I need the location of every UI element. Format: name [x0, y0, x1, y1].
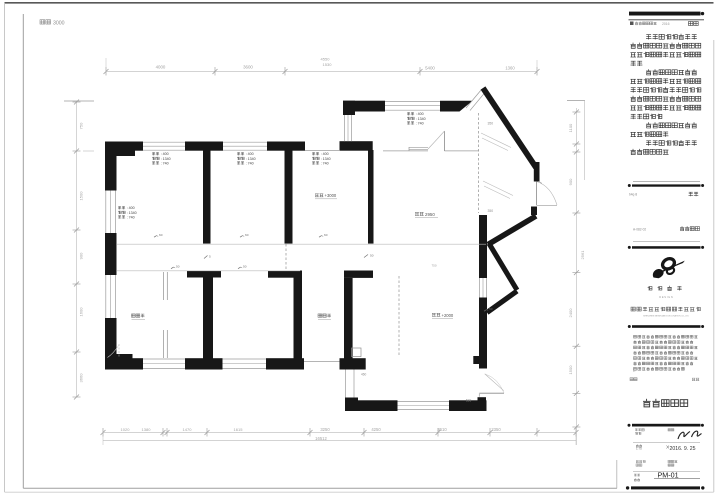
svg-text:900: 900 [568, 178, 573, 185]
svg-text:4250: 4250 [371, 427, 381, 432]
svg-text:3600: 3600 [243, 65, 253, 70]
svg-text:1500: 1500 [568, 365, 573, 375]
svg-text:750: 750 [431, 264, 436, 268]
svg-text:: 1340: : 1340 [161, 157, 171, 161]
svg-text:60: 60 [245, 233, 249, 237]
svg-text:1530: 1530 [323, 62, 333, 67]
svg-text:1100: 1100 [568, 123, 573, 132]
svg-text:1470: 1470 [183, 427, 193, 432]
svg-text:1600: 1600 [79, 307, 84, 317]
svg-text:2016. 9. 25: 2016. 9. 25 [670, 446, 696, 452]
svg-text:: 740: : 740 [127, 215, 135, 219]
svg-text:3000: 3000 [53, 21, 65, 27]
svg-text:: 740: : 740 [161, 161, 169, 165]
svg-text:50: 50 [176, 265, 180, 269]
svg-text:750: 750 [79, 122, 84, 129]
svg-text:350: 350 [488, 209, 494, 213]
svg-text:: 400: : 400 [246, 152, 254, 156]
svg-text:: 1340: : 1340 [246, 157, 256, 161]
svg-text:: 400: : 400 [416, 112, 424, 116]
svg-text:5400: 5400 [425, 65, 435, 70]
svg-text:A-082-02: A-082-02 [633, 228, 646, 232]
svg-text:: 740: : 740 [246, 161, 254, 165]
svg-text:900: 900 [79, 252, 84, 259]
svg-text:D E S I G N: D E S I G N [659, 295, 673, 299]
svg-text:: 400: : 400 [127, 206, 135, 210]
svg-text:: 1340: : 1340 [127, 211, 137, 215]
svg-text:: 740: : 740 [416, 121, 424, 125]
svg-text:1:75: 1:75 [636, 447, 642, 451]
svg-text:+3000: +3000 [325, 193, 337, 198]
svg-text:460: 460 [361, 373, 367, 377]
svg-text:: 740: : 740 [321, 161, 329, 165]
svg-text:+2000: +2000 [442, 313, 454, 318]
svg-text:3660: 3660 [79, 373, 84, 383]
svg-text:1380: 1380 [142, 427, 152, 432]
svg-text:350: 350 [488, 122, 494, 126]
svg-text:50: 50 [489, 307, 493, 311]
svg-text:60: 60 [324, 233, 328, 237]
svg-text:3610: 3610 [437, 427, 447, 432]
svg-text:2561: 2561 [580, 250, 585, 260]
svg-text:2400: 2400 [568, 308, 573, 318]
svg-text:5: 5 [209, 255, 211, 259]
svg-text:1360: 1360 [505, 65, 515, 70]
svg-text:1500: 1500 [79, 191, 84, 201]
svg-text:PM-01: PM-01 [658, 471, 679, 480]
svg-text:4000: 4000 [156, 65, 166, 70]
svg-text:50: 50 [243, 265, 247, 269]
svg-text:16512: 16512 [315, 436, 327, 441]
svg-text:b4q-8: b4q-8 [629, 193, 637, 197]
svg-text:2350: 2350 [491, 427, 501, 432]
svg-text:1615: 1615 [234, 427, 244, 432]
svg-text:: 1340: : 1340 [321, 157, 331, 161]
svg-text:SHENZHEN MEISHUANG DECORATION: SHENZHEN MEISHUANG DECORATION CO.,LTD [643, 315, 689, 318]
svg-text:3250: 3250 [320, 427, 330, 432]
svg-text:50: 50 [370, 254, 374, 258]
svg-text:2950: 2950 [425, 212, 435, 217]
svg-text:60: 60 [159, 233, 163, 237]
svg-text:: 400: : 400 [321, 152, 329, 156]
svg-text:: 400: : 400 [161, 152, 169, 156]
svg-text:: 1340: : 1340 [416, 117, 426, 121]
svg-text:1.: 1. [633, 369, 636, 373]
svg-text:2016: 2016 [662, 22, 670, 26]
svg-text:4550: 4550 [321, 57, 331, 62]
svg-text:500: 500 [466, 399, 472, 403]
svg-text:1020: 1020 [121, 427, 131, 432]
